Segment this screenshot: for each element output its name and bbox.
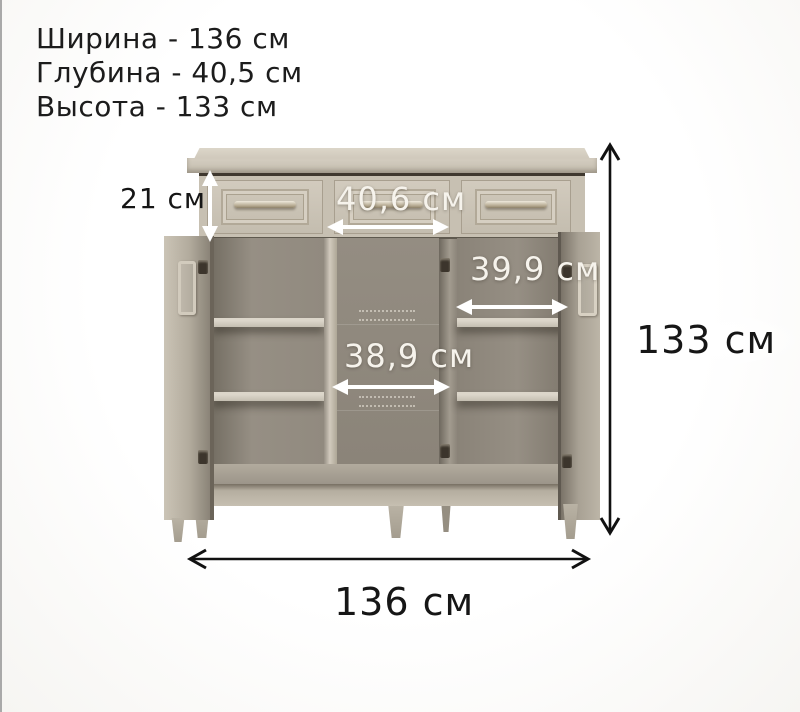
right-section-shelf-2: [457, 392, 567, 401]
cabinet-interior-floor: [213, 464, 567, 484]
drawer-right-handle: [485, 201, 547, 208]
shelf-position-line: [337, 324, 439, 325]
spec-depth: Глубина - 40,5 см: [36, 56, 303, 90]
left-section-opening: [213, 238, 324, 484]
spec-height: Высота - 133 см: [36, 90, 303, 124]
right-section-shelf-1: [457, 318, 567, 327]
cabinet-leg-middle: [384, 506, 408, 538]
label-right-section-width: 39,9 см: [470, 250, 600, 288]
label-middle-section-width: 38,9 см: [344, 337, 474, 375]
label-overall-width: 136 см: [312, 572, 496, 632]
shelf-position-line: [337, 410, 439, 411]
shelf-pin-row: [359, 310, 415, 312]
label-drawer-height: 21 см: [120, 182, 206, 215]
door-hinge: [562, 454, 572, 468]
door-hinge: [198, 260, 208, 274]
drawer-right: [461, 180, 571, 234]
shelf-pin-row: [359, 405, 415, 407]
label-overall-height: 133 см: [614, 310, 798, 370]
right-section-width-arrow: [454, 295, 570, 319]
spec-text-block: Ширина - 136 см Глубина - 40,5 см Высота…: [36, 22, 303, 124]
left-section-shelf-2: [213, 392, 324, 401]
label-middle-drawer-width: 40,6 см: [336, 180, 466, 218]
cabinet-base-plinth: [199, 484, 585, 506]
left-section-shelf-1: [213, 318, 324, 327]
door-hinge: [440, 444, 450, 458]
left-door-handle: [178, 261, 196, 315]
product-dimension-diagram: Ширина - 136 см Глубина - 40,5 см Высота…: [0, 0, 800, 712]
drawer-left-handle: [234, 201, 296, 208]
middle-section-width-arrow: [330, 375, 452, 399]
middle-drawer-width-arrow: [325, 215, 451, 239]
section-divider: [324, 238, 337, 484]
cabinet-leg-back: [439, 506, 453, 532]
door-hinge: [198, 450, 208, 464]
drawer-left: [207, 180, 323, 234]
overall-width-arrow: [184, 545, 594, 573]
shelf-pin-row: [359, 319, 415, 321]
left-door-leg: [168, 518, 188, 542]
door-hinge: [440, 258, 450, 272]
spec-width: Ширина - 136 см: [36, 22, 303, 56]
cabinet-cornice: [187, 158, 597, 173]
